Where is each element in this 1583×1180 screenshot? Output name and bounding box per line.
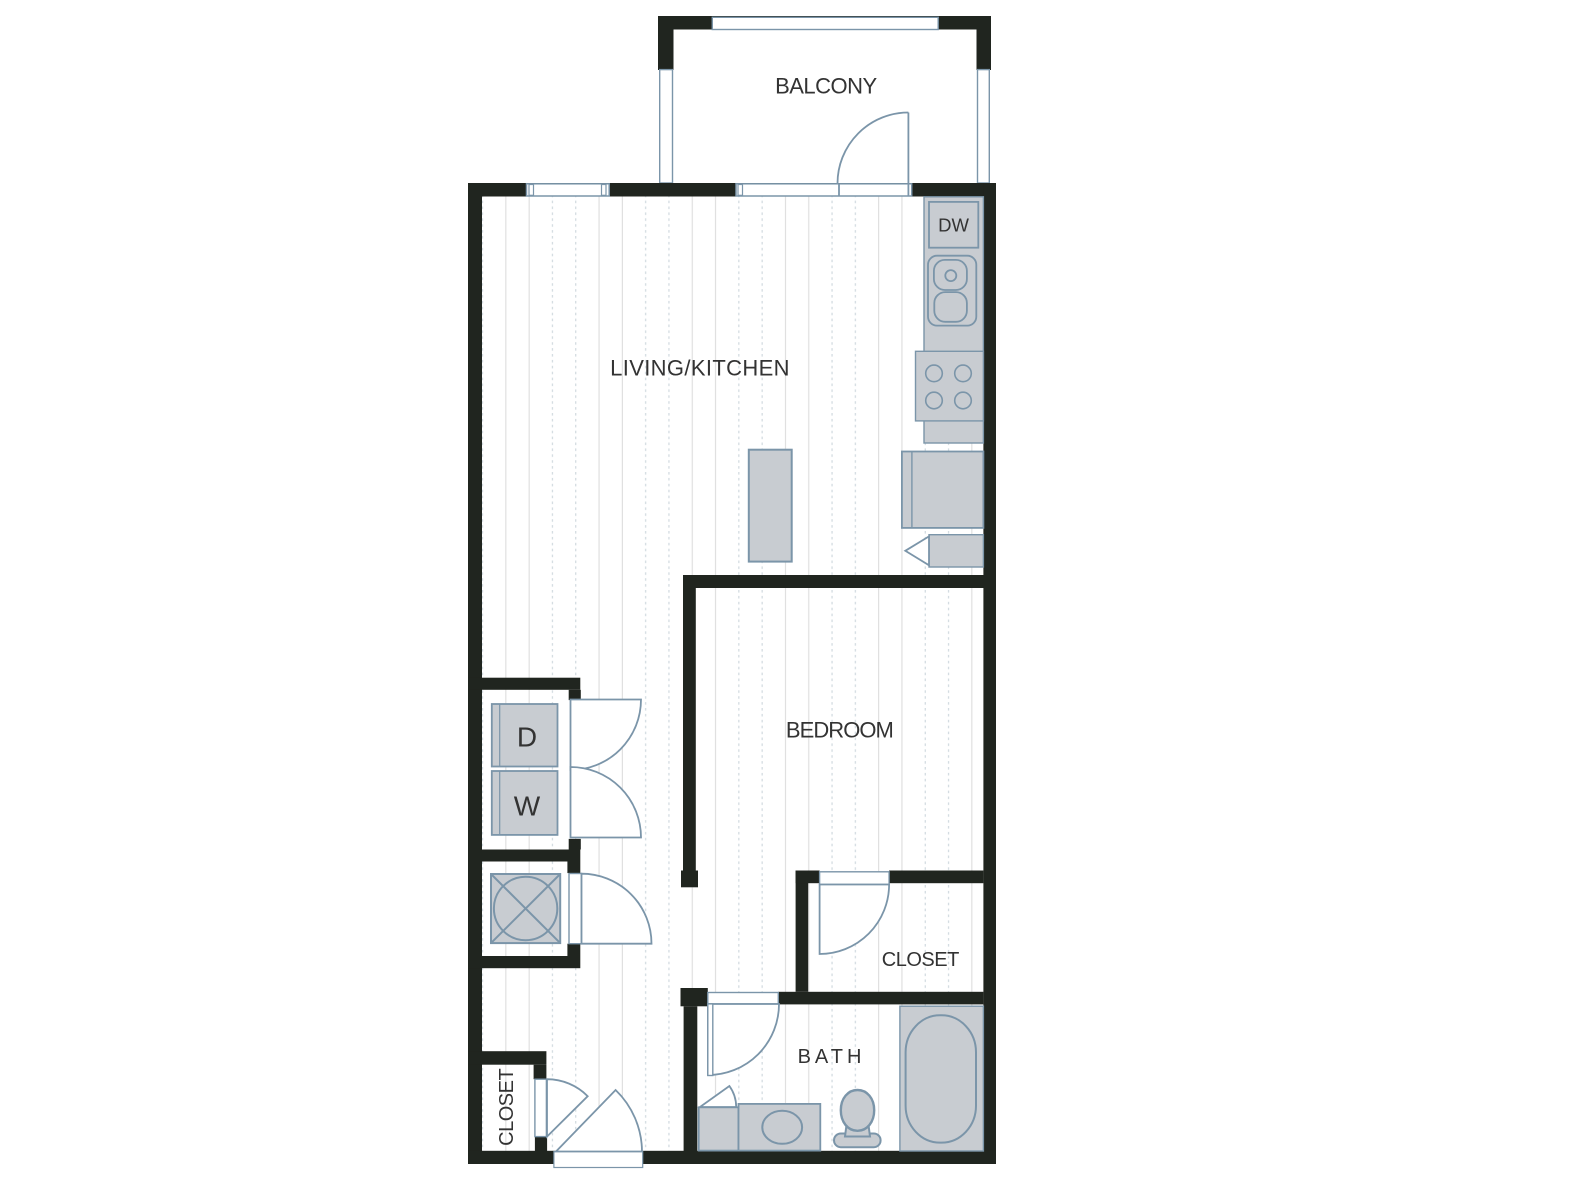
svg-text:BATH: BATH (798, 1046, 866, 1068)
svg-text:CLOSET: CLOSET (496, 1069, 518, 1146)
svg-text:LIVING/KITCHEN: LIVING/KITCHEN (610, 356, 790, 381)
svg-text:D: D (517, 722, 537, 753)
svg-text:BEDROOM: BEDROOM (786, 717, 893, 742)
svg-text:W: W (514, 791, 541, 822)
svg-text:BALCONY: BALCONY (775, 73, 877, 98)
svg-text:CLOSET: CLOSET (882, 949, 959, 971)
svg-text:DW: DW (938, 215, 969, 236)
